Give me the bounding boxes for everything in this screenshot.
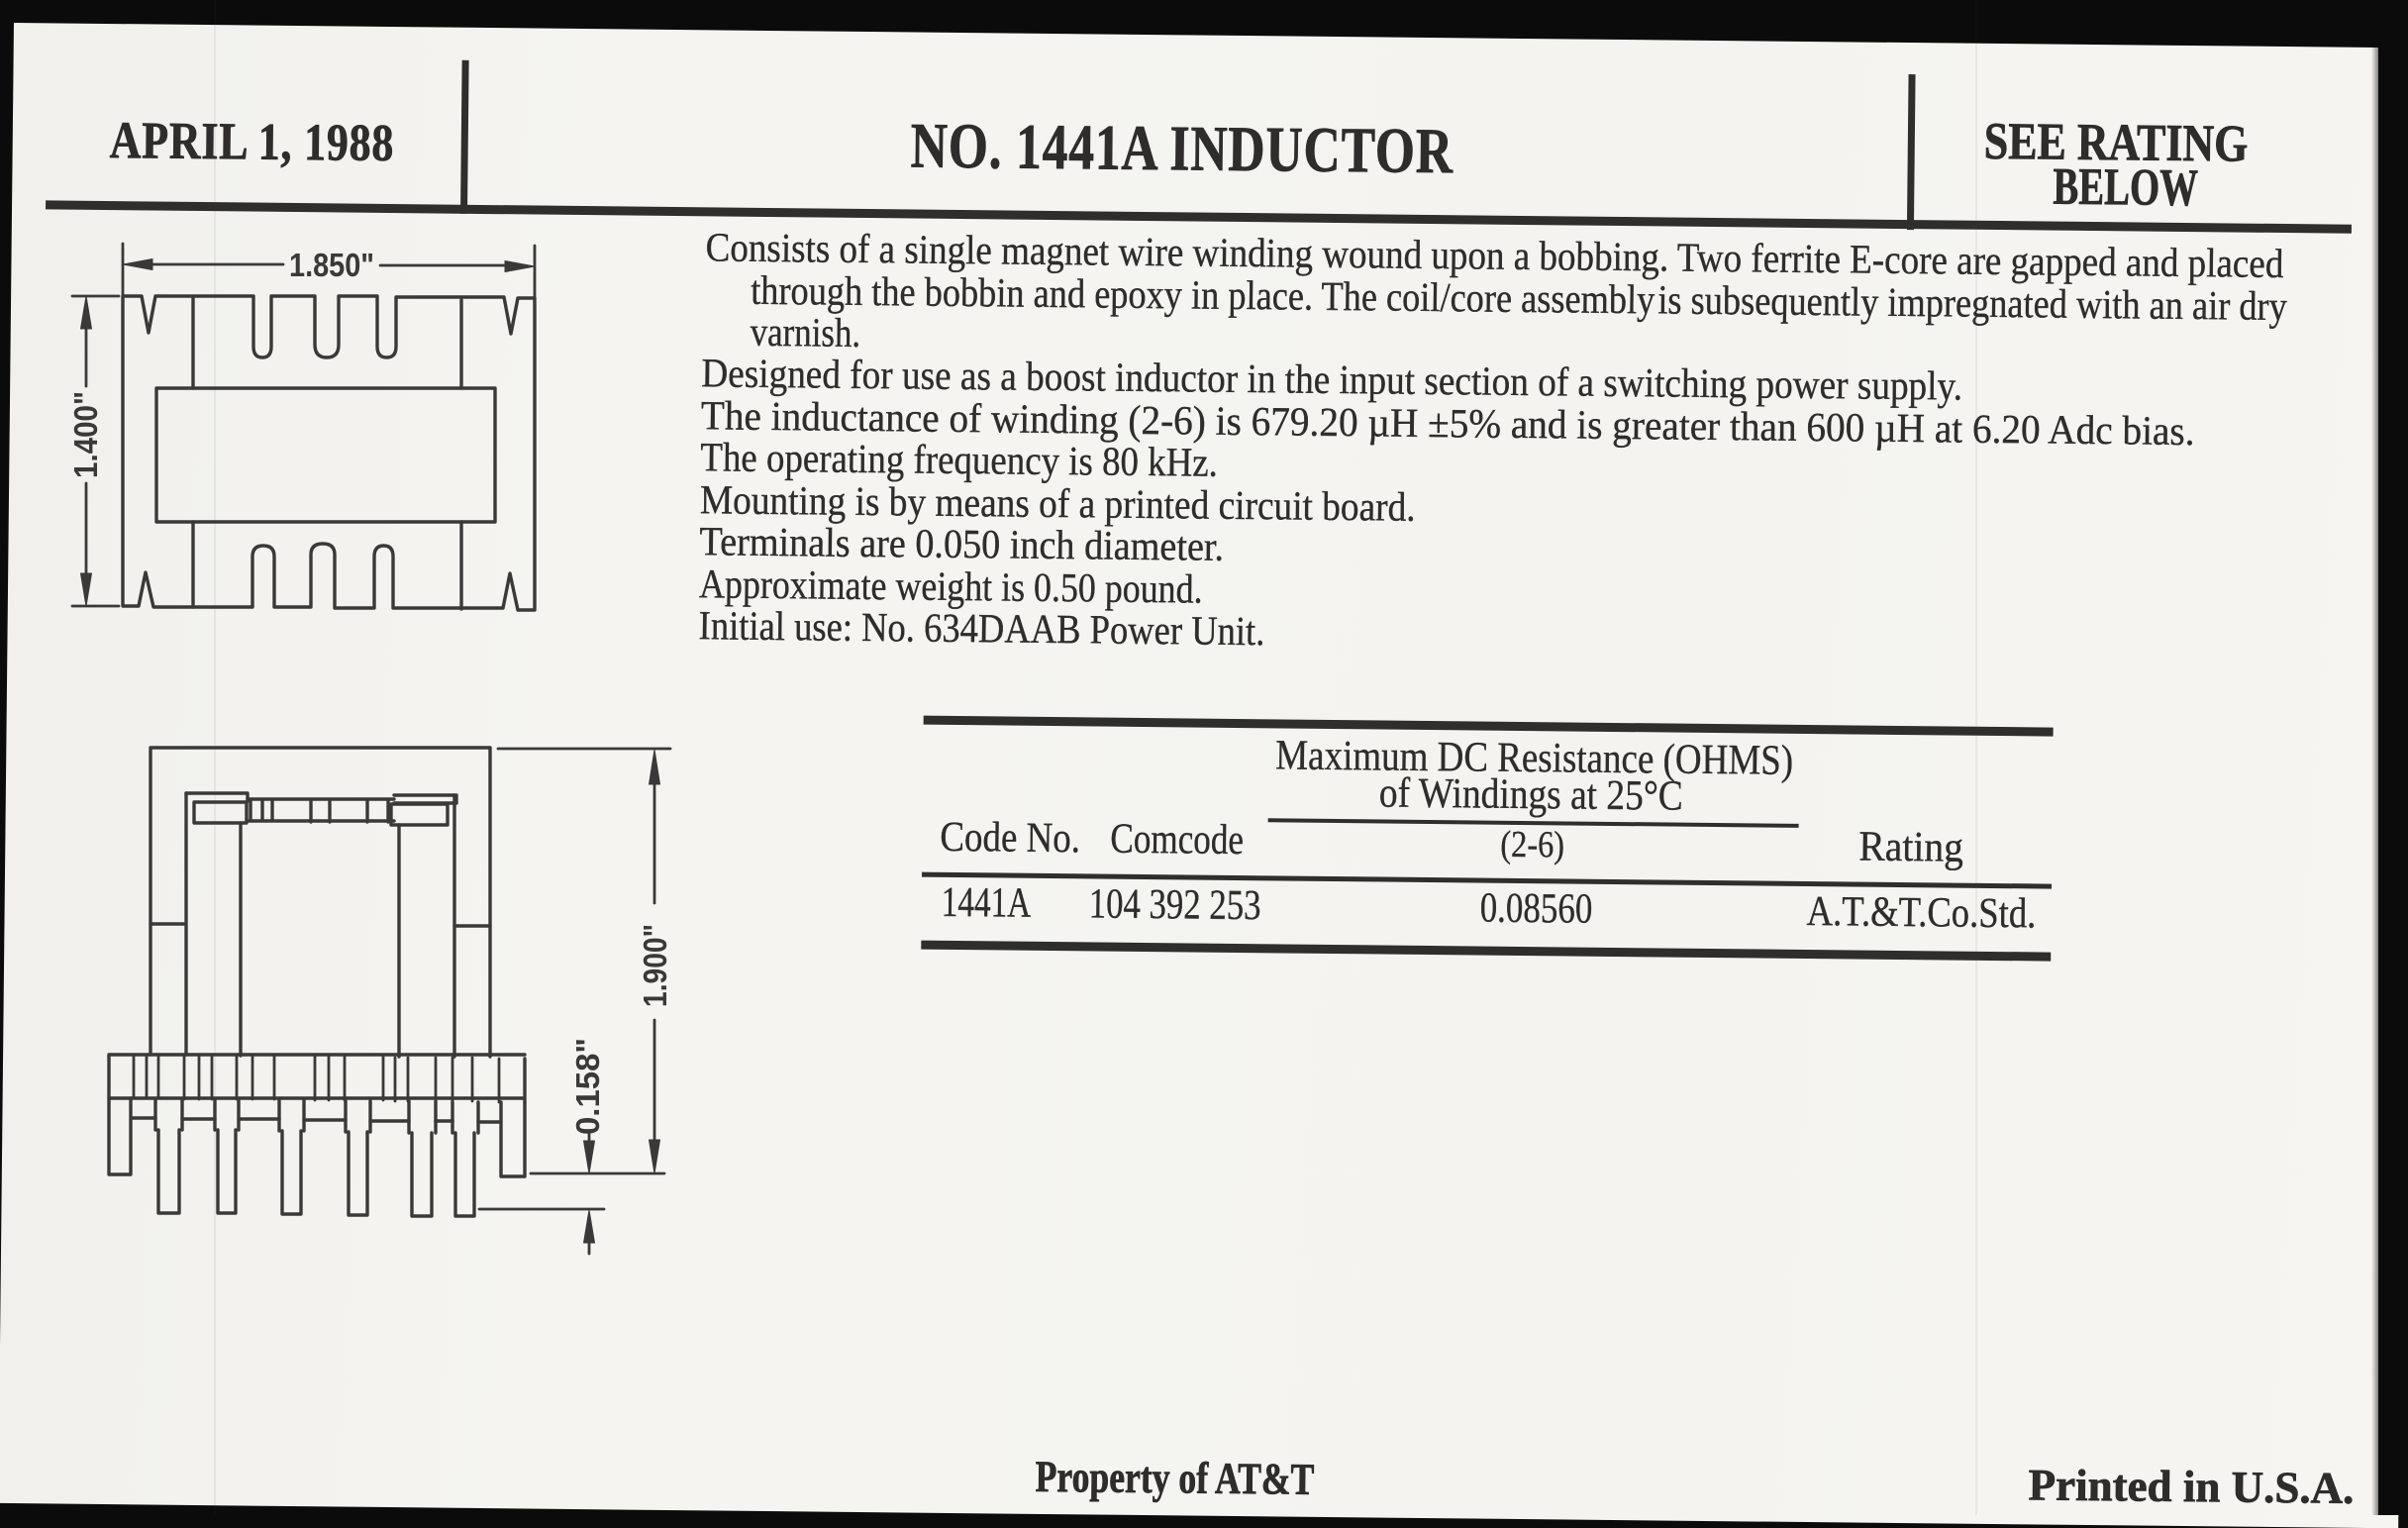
svg-text:0.158": 0.158" (569, 1038, 606, 1135)
svg-text:1.850": 1.850" (289, 247, 374, 283)
svg-text:1.400": 1.400" (67, 391, 104, 478)
svg-text:1.900": 1.900" (637, 924, 673, 1007)
